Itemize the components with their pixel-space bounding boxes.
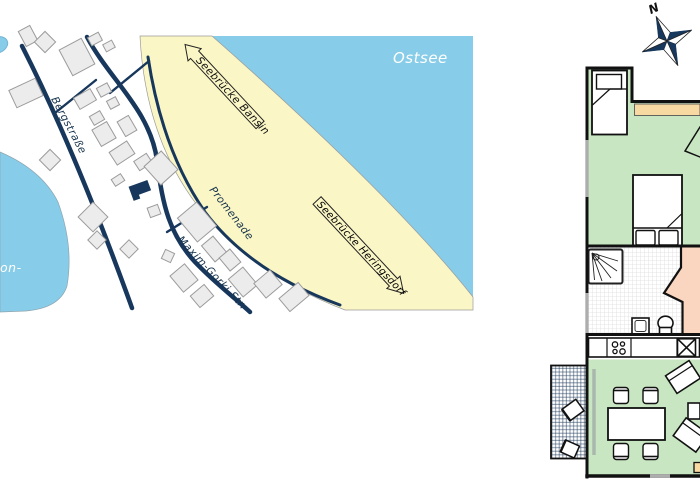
floor-plan: N [551, 0, 700, 477]
bathroom-sink [632, 318, 649, 334]
shower [589, 250, 623, 284]
side-table [688, 403, 700, 419]
dining-chair [643, 388, 658, 404]
pond [0, 34, 10, 57]
single-bed [592, 71, 627, 135]
kitchen-counter [589, 338, 700, 357]
lake-label-fragment: on- [0, 260, 22, 275]
lake [0, 152, 69, 312]
page: Seebrücke Bansin Seebrücke Heringsdorf O… [0, 0, 700, 500]
compass-north-label: N [646, 0, 661, 17]
highlighted-building [129, 180, 153, 201]
dining-chair [643, 444, 658, 460]
sideboard-strip [635, 104, 700, 116]
dining-chair [614, 388, 629, 404]
double-bed [633, 175, 682, 246]
town-map: Seebrücke Bansin Seebrücke Heringsdorf O… [0, 25, 473, 312]
sea-label: Ostsee [393, 49, 448, 67]
compass-rose-icon: N [625, 0, 700, 77]
dining-table [608, 408, 665, 440]
corner-stool [694, 463, 700, 473]
location-and-floorplan-graphic: Seebrücke Bansin Seebrücke Heringsdorf O… [0, 0, 700, 500]
compass-points [631, 5, 700, 76]
toilet [658, 316, 673, 335]
dining-chair [614, 444, 629, 460]
